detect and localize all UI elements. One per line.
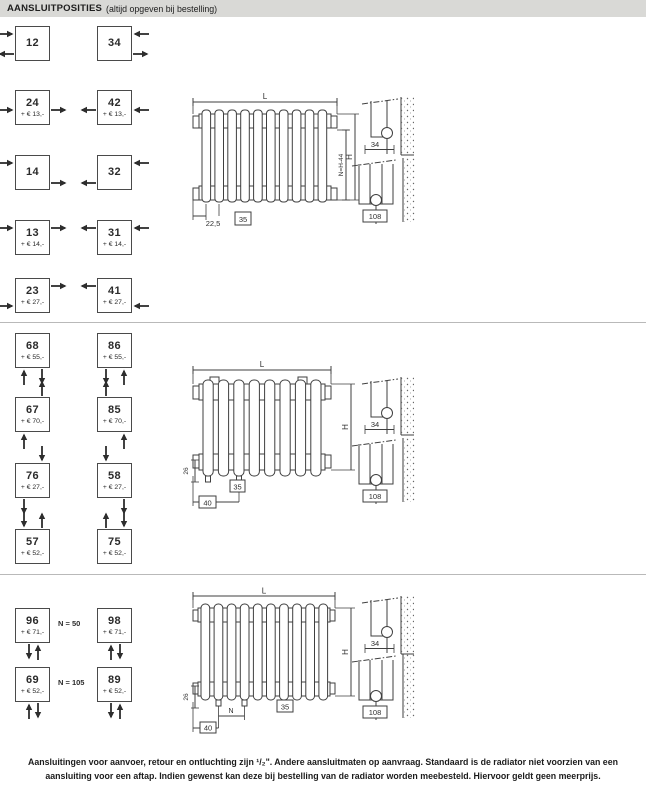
connection-code: 85 — [98, 405, 131, 416]
catalog-page: AANSLUITPOSITIES (altijd opgeven bij bes… — [0, 0, 646, 800]
connection-code: 32 — [98, 167, 131, 178]
flow-arrow-up-icon — [38, 512, 46, 528]
flow-arrow-down-icon — [34, 703, 42, 719]
flow-arrow-right-icon — [51, 224, 67, 232]
flow-arrow-down-icon — [38, 446, 46, 462]
flow-arrow-left-icon — [133, 106, 149, 114]
surcharge-price: + € 70,- — [98, 418, 131, 425]
connection-box-69: 69+ € 52,- — [15, 667, 50, 702]
wall-distance-detail-108: 108 — [346, 654, 432, 722]
flow-arrow-right-icon — [133, 50, 149, 58]
connection-box-75: 75+ € 52,- — [97, 529, 132, 564]
flow-arrow-left-icon — [80, 179, 96, 187]
section-divider — [0, 322, 646, 323]
flow-arrow-right-icon — [0, 224, 14, 232]
flow-arrow-up-icon — [25, 703, 33, 719]
connection-box-32: 32 — [97, 155, 132, 190]
connection-code: 31 — [98, 228, 131, 239]
connection-code: 41 — [98, 286, 131, 297]
connection-code: 42 — [98, 98, 131, 109]
wall-distance-detail-108: 108 — [346, 158, 432, 226]
flow-arrow-down-icon — [20, 512, 28, 528]
flow-arrow-left-icon — [80, 282, 96, 290]
flow-arrow-up-icon — [107, 644, 115, 660]
page-subtitle: (altijd opgeven bij bestelling) — [106, 4, 217, 14]
connection-code: 67 — [16, 405, 49, 416]
flow-arrow-down-icon — [107, 703, 115, 719]
flow-arrow-right-icon — [51, 282, 67, 290]
dim-label-n-h44: N=H-44 — [338, 153, 345, 176]
surcharge-price: + € 14,- — [98, 241, 131, 248]
connection-code: 86 — [98, 341, 131, 352]
surcharge-price: + € 70,- — [16, 418, 49, 425]
surcharge-price: + € 52,- — [98, 688, 131, 695]
radiator-drawing-section-2: L H 26 40 35 — [183, 356, 361, 522]
footer-note: Aansluitingen voor aanvoer, retour en on… — [22, 756, 624, 783]
connection-code: 68 — [16, 341, 49, 352]
flow-arrow-left-icon — [133, 159, 149, 167]
wall-distance-label: 34 — [371, 639, 379, 648]
connection-code: 34 — [98, 38, 131, 49]
wall-distance-label: 108 — [369, 212, 382, 221]
connection-box-57: 57+ € 52,- — [15, 529, 50, 564]
dim-label-35: 35 — [281, 703, 289, 712]
wall-distance-label: 108 — [369, 708, 382, 717]
dim-label-22-5: 22,5 — [206, 219, 221, 228]
note-n105: N = 105 — [58, 678, 84, 687]
flow-arrow-right-icon — [0, 302, 14, 310]
connection-code: 76 — [16, 471, 49, 482]
surcharge-price: + € 13,- — [16, 111, 49, 118]
connection-code: 23 — [16, 286, 49, 297]
connection-box-86: 86+ € 55,- — [97, 333, 132, 368]
wall-distance-detail-34: 34 — [352, 97, 430, 159]
flow-arrow-left-icon — [133, 302, 149, 310]
dim-label-N: N — [228, 708, 233, 715]
flow-arrow-right-icon — [0, 30, 14, 38]
page-title: AANSLUITPOSITIES — [7, 3, 102, 14]
flow-arrow-right-icon — [51, 179, 67, 187]
surcharge-price: + € 52,- — [98, 550, 131, 557]
surcharge-price: + € 13,- — [98, 111, 131, 118]
connection-box-89: 89+ € 52,- — [97, 667, 132, 702]
surcharge-price: + € 14,- — [16, 241, 49, 248]
dim-label-35: 35 — [239, 215, 247, 224]
section-divider — [0, 574, 646, 575]
flow-arrow-left-icon — [80, 106, 96, 114]
connection-code: 57 — [16, 537, 49, 548]
flow-arrow-up-icon — [38, 380, 46, 396]
flow-arrow-down-icon — [116, 644, 124, 660]
flow-arrow-up-icon — [102, 512, 110, 528]
connection-box-12: 12 — [15, 26, 50, 61]
surcharge-price: + € 52,- — [16, 688, 49, 695]
surcharge-price: + € 27,- — [98, 299, 131, 306]
connection-box-24: 24+ € 13,- — [15, 90, 50, 125]
connection-box-68: 68+ € 55,- — [15, 333, 50, 368]
connection-box-41: 41+ € 27,- — [97, 278, 132, 313]
section-header-bar: AANSLUITPOSITIES (altijd opgeven bij bes… — [0, 0, 646, 17]
note-n50: N = 50 — [58, 619, 80, 628]
flow-arrow-up-icon — [120, 433, 128, 449]
surcharge-price: + € 55,- — [98, 354, 131, 361]
dim-label-35: 35 — [233, 483, 241, 492]
connection-box-23: 23+ € 27,- — [15, 278, 50, 313]
flow-arrow-right-icon — [0, 159, 14, 167]
wall-distance-label: 34 — [371, 420, 379, 429]
surcharge-price: + € 71,- — [16, 629, 49, 636]
flow-arrow-left-icon — [0, 50, 14, 58]
flow-arrow-down-icon — [25, 644, 33, 660]
connection-code: 69 — [16, 675, 49, 686]
radiator-drawing-section-3: L H 26 40 N 35 — [183, 586, 361, 736]
flow-arrow-left-icon — [133, 30, 149, 38]
flow-arrow-down-icon — [102, 446, 110, 462]
radiator-drawing-section-1: L N=H-44 H 22,5 35 — [183, 90, 361, 230]
surcharge-price: + € 27,- — [98, 484, 131, 491]
connection-code: 98 — [98, 616, 131, 627]
wall-distance-detail-108: 108 — [346, 438, 432, 506]
connection-box-76: 76+ € 27,- — [15, 463, 50, 498]
flow-arrow-up-icon — [20, 433, 28, 449]
connection-box-14: 14 — [15, 155, 50, 190]
connection-code: 13 — [16, 228, 49, 239]
connection-code: 89 — [98, 675, 131, 686]
connection-code: 96 — [16, 616, 49, 627]
flow-arrow-left-icon — [80, 224, 96, 232]
flow-arrow-right-icon — [51, 106, 67, 114]
flow-arrow-down-icon — [120, 512, 128, 528]
connection-code: 75 — [98, 537, 131, 548]
dim-label-40: 40 — [204, 724, 212, 733]
surcharge-price: + € 27,- — [16, 484, 49, 491]
flow-arrow-right-icon — [0, 106, 14, 114]
wall-distance-detail-34: 34 — [352, 377, 430, 439]
connection-box-42: 42+ € 13,- — [97, 90, 132, 125]
connection-code: 12 — [16, 38, 49, 49]
surcharge-price: + € 55,- — [16, 354, 49, 361]
connection-code: 58 — [98, 471, 131, 482]
surcharge-price: + € 71,- — [98, 629, 131, 636]
dim-label-40: 40 — [203, 499, 211, 508]
dim-label-H: H — [341, 424, 350, 430]
flow-arrow-up-icon — [34, 644, 42, 660]
connection-box-98: 98+ € 71,- — [97, 608, 132, 643]
flow-arrow-up-icon — [116, 703, 124, 719]
flow-arrow-up-icon — [20, 369, 28, 385]
connection-box-31: 31+ € 14,- — [97, 220, 132, 255]
dim-label-L: L — [262, 587, 267, 596]
connection-code: 24 — [16, 98, 49, 109]
dim-label-L: L — [263, 92, 268, 101]
surcharge-price: + € 52,- — [16, 550, 49, 557]
connection-box-85: 85+ € 70,- — [97, 397, 132, 432]
connection-box-13: 13+ € 14,- — [15, 220, 50, 255]
dim-label-26: 26 — [183, 693, 190, 701]
connection-code: 14 — [16, 167, 49, 178]
flow-arrow-up-icon — [120, 369, 128, 385]
connection-box-96: 96+ € 71,- — [15, 608, 50, 643]
dim-label-L: L — [260, 360, 265, 369]
surcharge-price: + € 27,- — [16, 299, 49, 306]
connection-box-34: 34 — [97, 26, 132, 61]
wall-distance-label: 34 — [371, 140, 379, 149]
wall-distance-label: 108 — [369, 492, 382, 501]
wall-distance-detail-34: 34 — [352, 596, 430, 658]
connection-box-67: 67+ € 70,- — [15, 397, 50, 432]
dim-label-26: 26 — [183, 467, 190, 475]
flow-arrow-left-icon — [133, 224, 149, 232]
connection-box-58: 58+ € 27,- — [97, 463, 132, 498]
flow-arrow-up-icon — [102, 380, 110, 396]
